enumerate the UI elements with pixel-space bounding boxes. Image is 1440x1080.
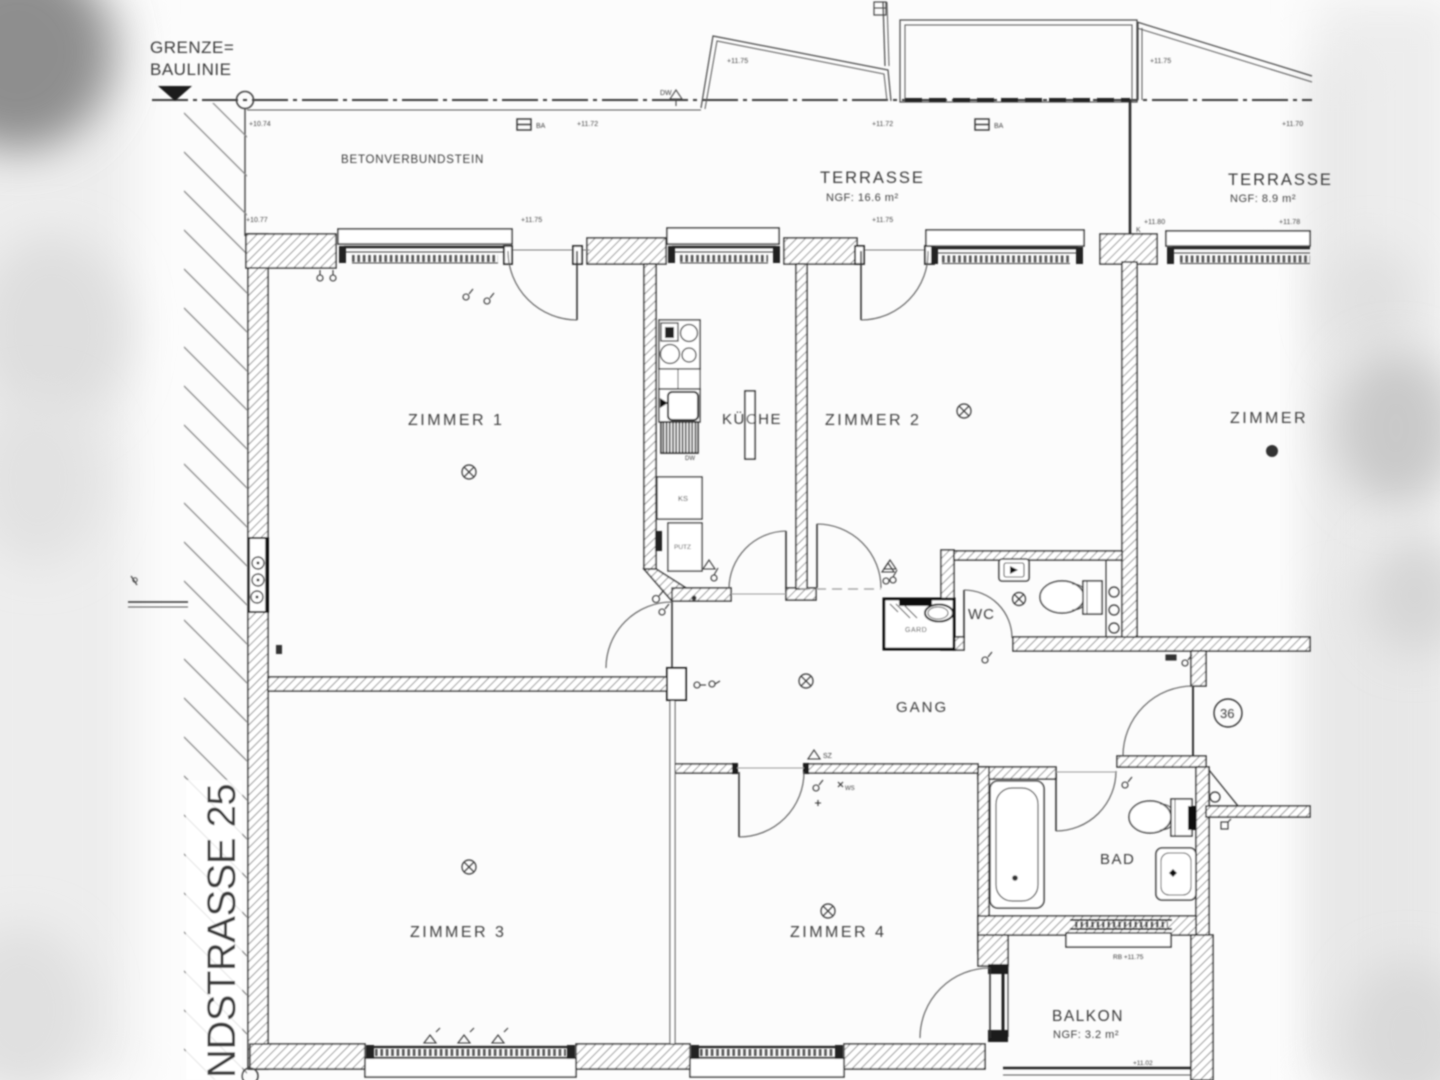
- svg-text:PUTZ: PUTZ: [674, 544, 691, 551]
- svg-text:+11.70: +11.70: [1282, 121, 1303, 128]
- svg-text:BA: BA: [536, 123, 546, 130]
- svg-text:DW: DW: [685, 456, 695, 462]
- svg-text:KS: KS: [678, 494, 688, 503]
- svg-text:BAULINIE: BAULINIE: [150, 60, 231, 79]
- svg-text:+10.77: +10.77: [246, 217, 268, 224]
- svg-text:TERRASSE: TERRASSE: [1228, 171, 1333, 189]
- svg-text:NGF: 3.2 m²: NGF: 3.2 m²: [1053, 1029, 1119, 1041]
- svg-text:+11.78: +11.78: [1279, 219, 1300, 226]
- svg-text:GANG: GANG: [896, 699, 948, 716]
- svg-text:ZIMMER: ZIMMER: [1230, 410, 1308, 427]
- svg-text:NGF: 16.6 m²: NGF: 16.6 m²: [826, 192, 899, 204]
- svg-text:NGF: 8.9 m²: NGF: 8.9 m²: [1230, 193, 1296, 205]
- svg-text:SZ: SZ: [823, 753, 833, 760]
- svg-text:+10.74: +10.74: [249, 121, 271, 128]
- svg-text:RB +11.75: RB +11.75: [1113, 954, 1144, 961]
- svg-text:WC: WC: [968, 606, 995, 623]
- svg-text:+11.80: +11.80: [1144, 219, 1165, 226]
- svg-text:36: 36: [1220, 706, 1234, 721]
- svg-text:DW: DW: [660, 90, 672, 97]
- svg-text:+11.75: +11.75: [727, 58, 748, 65]
- svg-text:BETONVERBUNDSTEIN: BETONVERBUNDSTEIN: [341, 154, 484, 166]
- svg-text:NDSTRASSE 25: NDSTRASSE 25: [200, 784, 244, 1078]
- svg-text:GARD: GARD: [905, 627, 927, 634]
- svg-text:ZIMMER 1: ZIMMER 1: [408, 412, 504, 429]
- svg-text:ZIMMER 4: ZIMMER 4: [790, 924, 886, 941]
- svg-text:+11.72: +11.72: [577, 121, 598, 128]
- svg-text:+11.72: +11.72: [872, 121, 893, 128]
- svg-text:KÜCHE: KÜCHE: [722, 410, 782, 428]
- svg-text:+11.75: +11.75: [1150, 58, 1171, 65]
- svg-text:WS: WS: [845, 786, 855, 792]
- svg-text:BAD: BAD: [1100, 851, 1135, 868]
- svg-text:BALKON: BALKON: [1052, 1008, 1124, 1025]
- svg-text:ZIMMER 2: ZIMMER 2: [825, 412, 921, 429]
- svg-text:+11.75: +11.75: [872, 217, 893, 224]
- svg-text:GRENZE=: GRENZE=: [150, 38, 234, 57]
- svg-text:K: K: [1136, 227, 1141, 234]
- svg-text:+11.75: +11.75: [521, 217, 542, 224]
- svg-text:TERRASSE: TERRASSE: [820, 169, 925, 187]
- svg-text:BA: BA: [994, 123, 1004, 130]
- svg-text:+11.02: +11.02: [1133, 1060, 1153, 1067]
- svg-text:ZIMMER 3: ZIMMER 3: [410, 924, 506, 941]
